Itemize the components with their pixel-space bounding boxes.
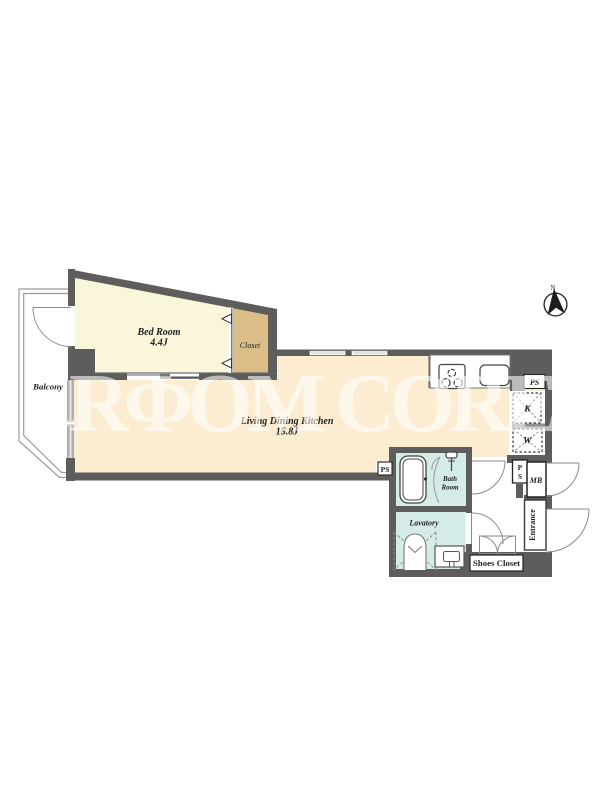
svg-text:Balcony: Balcony (32, 382, 63, 392)
svg-text:Entrance: Entrance (528, 509, 537, 541)
svg-text:RΦOM CORE: RΦOM CORE (69, 357, 556, 450)
svg-text:MB: MB (529, 476, 543, 485)
svg-text:N: N (551, 285, 556, 292)
svg-text:PS: PS (381, 465, 390, 474)
svg-text:P: P (518, 464, 523, 472)
svg-text:Bed Room: Bed Room (136, 327, 180, 338)
svg-text:4.4J: 4.4J (149, 338, 169, 349)
svg-text:Closet: Closet (240, 341, 261, 350)
svg-text:Shoes Closet: Shoes Closet (473, 558, 520, 568)
svg-text:Lavatory: Lavatory (408, 519, 439, 528)
svg-text:Room: Room (440, 484, 459, 492)
svg-text:S: S (518, 473, 522, 481)
svg-text:Bath: Bath (442, 475, 457, 483)
